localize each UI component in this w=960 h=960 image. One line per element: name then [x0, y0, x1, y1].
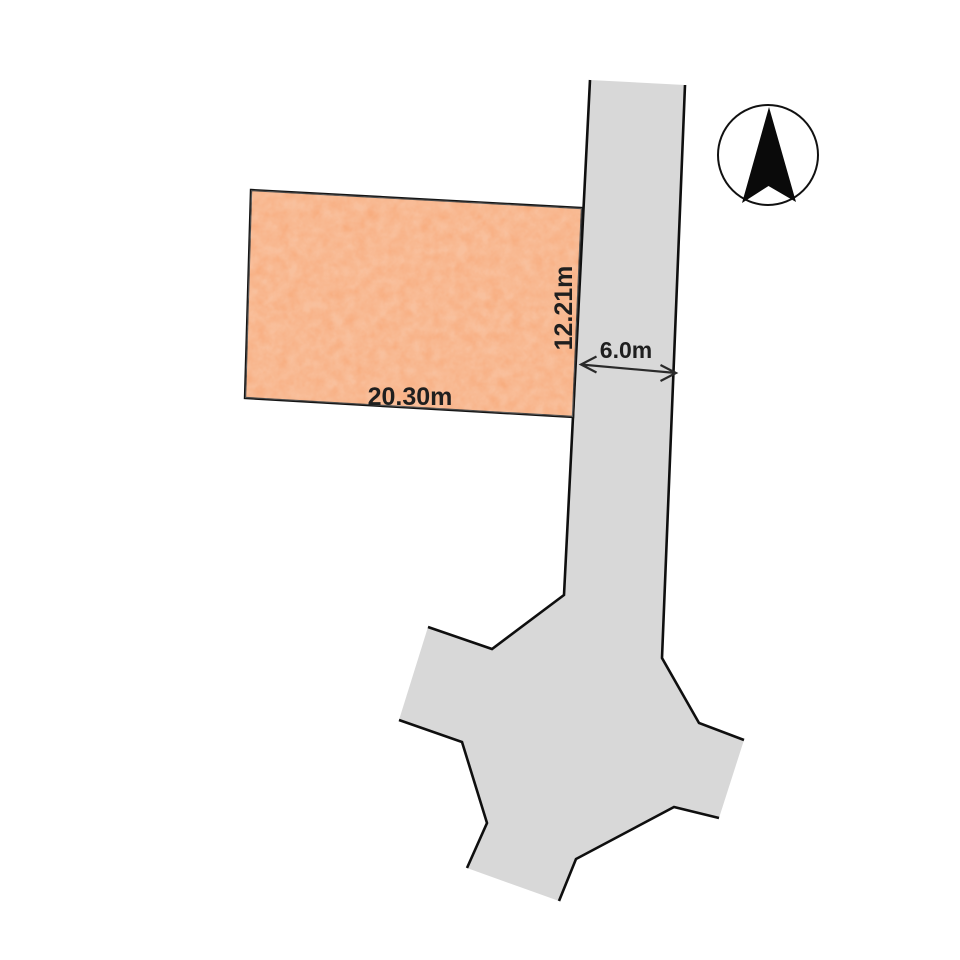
plot-width-dimension: 20.30m [368, 383, 453, 411]
road-width-dimension: 6.0m [600, 337, 652, 363]
compass [718, 105, 818, 205]
site-plan-page: 20.30m 12.21m 6.0m [0, 0, 960, 960]
site-plan-diagram: 20.30m 12.21m 6.0m [0, 0, 960, 960]
plot-depth-dimension: 12.21m [550, 266, 578, 351]
